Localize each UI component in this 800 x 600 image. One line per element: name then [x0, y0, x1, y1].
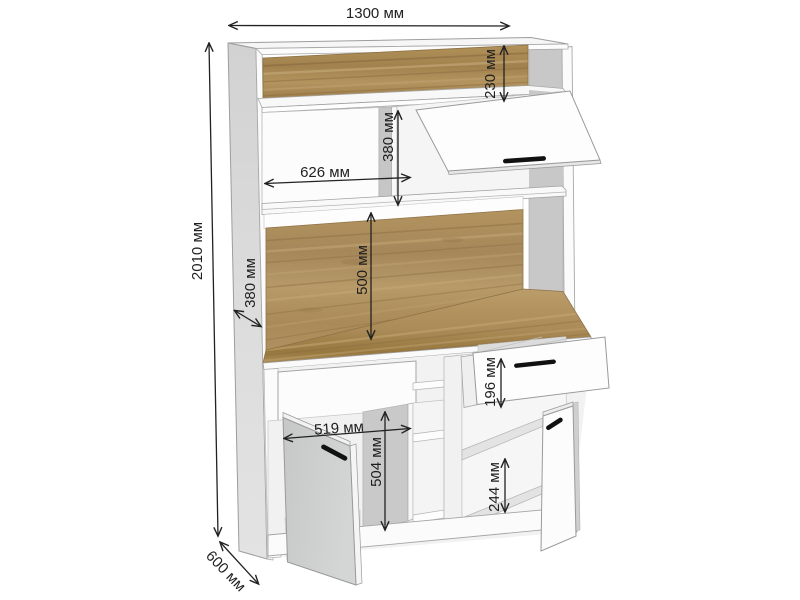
svg-text:1300 мм: 1300 мм [346, 5, 404, 22]
svg-text:380 мм: 380 мм [380, 112, 397, 162]
svg-text:196 мм: 196 мм [482, 357, 499, 407]
svg-text:626 мм: 626 мм [300, 164, 350, 181]
svg-text:230 мм: 230 мм [482, 49, 499, 99]
svg-text:244 мм: 244 мм [486, 462, 503, 512]
svg-text:2010 мм: 2010 мм [189, 222, 206, 280]
svg-text:519 мм: 519 мм [314, 418, 365, 438]
svg-text:380 мм: 380 мм [242, 258, 259, 308]
svg-text:504 мм: 504 мм [368, 437, 385, 487]
svg-text:500 мм: 500 мм [354, 245, 371, 295]
